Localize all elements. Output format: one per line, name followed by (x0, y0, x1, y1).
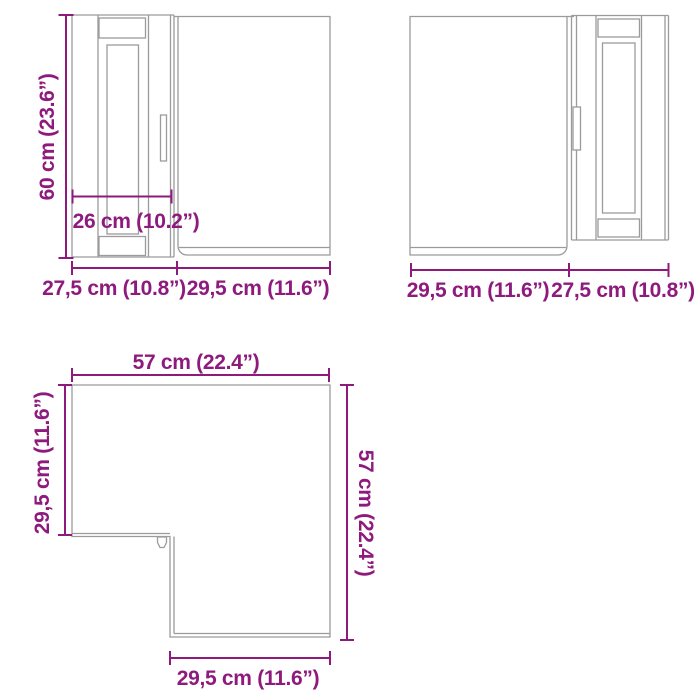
dimension-diagram-sheet: 60 cm (23.6”) 26 cm (10.2”) 27,5 cm (10.… (0, 0, 700, 700)
top-view-bottom-width-label: 29,5 cm (11.6”) (177, 667, 320, 691)
top-view-bottom-dim-line (170, 651, 330, 665)
left-door-handle (161, 115, 167, 161)
top-view-inner-edges (72, 534, 330, 634)
left-cabinet-door-width-label: 26 cm (10.2”) (73, 210, 200, 234)
right-door-handle (573, 107, 581, 150)
right-bottom-dim-line (411, 263, 669, 277)
left-cabinet-door-section-width-label: 27,5 cm (10.8”) (42, 277, 186, 301)
left-door-panel (107, 45, 139, 234)
right-side-panel (410, 17, 574, 256)
right-door-top-rail (598, 19, 640, 37)
left-cabinet-height-label: 60 cm (23.6”) (36, 74, 60, 201)
right-door-bottom-rail (598, 219, 640, 237)
right-door-panel (603, 43, 636, 213)
top-view-left-depth-label: 29,5 cm (11.6”) (31, 392, 55, 535)
top-view-outline (72, 385, 330, 637)
left-door-bottom-rail (99, 237, 146, 256)
left-height-dim-line (59, 15, 74, 258)
corner-cabinet-top-view (72, 385, 330, 637)
top-view-right-depth-label: 57 cm (22.4”) (353, 450, 377, 577)
top-view-right-dim-line (340, 385, 354, 640)
left-cabinet-side-section-width-label: 29,5 cm (11.6”) (187, 277, 330, 301)
left-bottom-dim-line (72, 261, 330, 275)
right-cabinet-side-section-width-label: 29,5 cm (11.6”) (407, 279, 550, 303)
top-view-left-dim-line (58, 385, 72, 535)
top-view-dimensions (58, 368, 354, 665)
diagram-linework (0, 0, 700, 700)
left-door-top-rail (99, 18, 146, 38)
top-view-top-width-label: 57 cm (22.4”) (133, 351, 260, 375)
top-view-hinge-tab (158, 537, 167, 548)
right-cabinet-door-section-width-label: 27,5 cm (10.8”) (551, 279, 695, 303)
cabinet-right-dimensions (411, 263, 669, 277)
cabinet-right-front-view (410, 16, 669, 256)
